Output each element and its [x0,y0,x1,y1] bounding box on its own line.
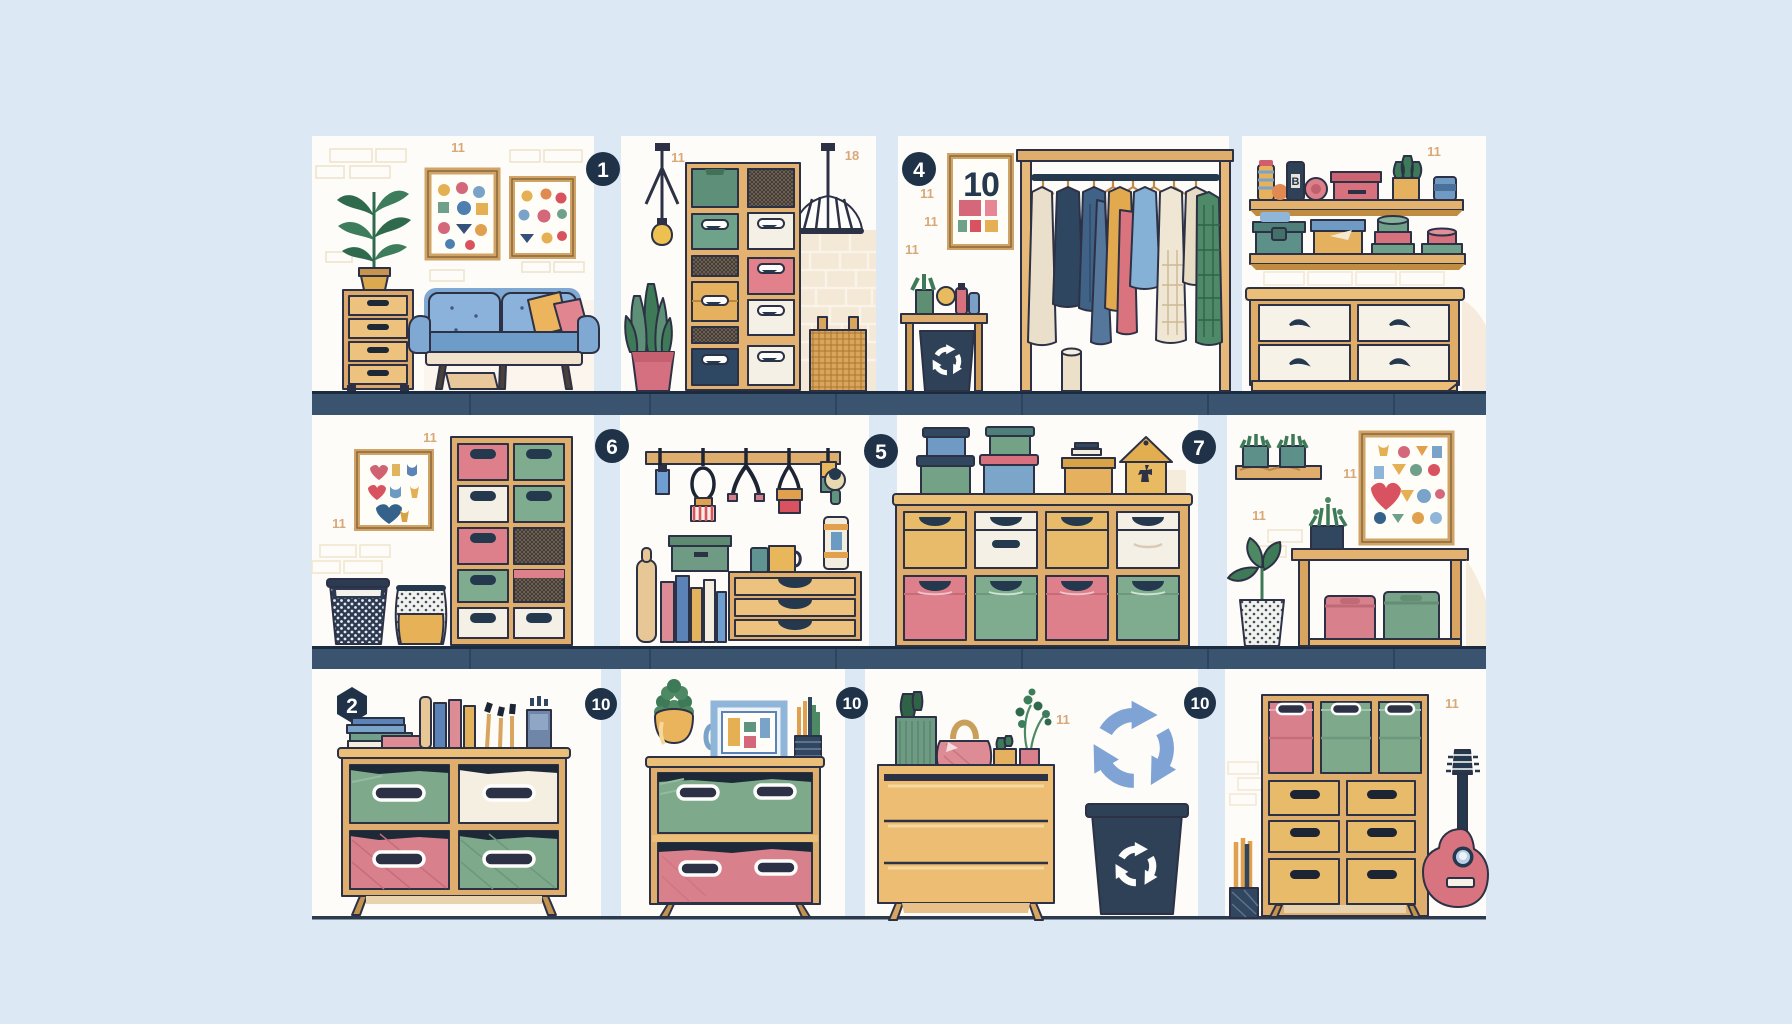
svg-text:6: 6 [606,436,618,459]
svg-text:2: 2 [346,695,358,718]
svg-text:10: 10 [843,694,862,713]
svg-text:10: 10 [963,166,999,204]
svg-text:11: 11 [1427,144,1441,159]
svg-text:11: 11 [1445,696,1459,711]
svg-text:B: B [1292,176,1300,188]
svg-text:11: 11 [920,186,934,201]
svg-text:11: 11 [671,150,685,165]
svg-text:11: 11 [924,214,938,229]
svg-text:11: 11 [905,242,919,257]
svg-text:11: 11 [332,516,346,531]
svg-text:11: 11 [451,140,465,155]
svg-text:18: 18 [845,148,859,163]
svg-text:11: 11 [1252,508,1266,523]
svg-text:11: 11 [1343,466,1357,481]
svg-text:7: 7 [1193,437,1205,460]
svg-text:11: 11 [423,430,437,445]
svg-text:4: 4 [913,159,925,182]
svg-text:10: 10 [592,695,611,714]
svg-text:10: 10 [1191,694,1210,713]
svg-text:11: 11 [1056,712,1070,727]
svg-text:5: 5 [875,441,887,464]
svg-text:1: 1 [597,159,609,182]
